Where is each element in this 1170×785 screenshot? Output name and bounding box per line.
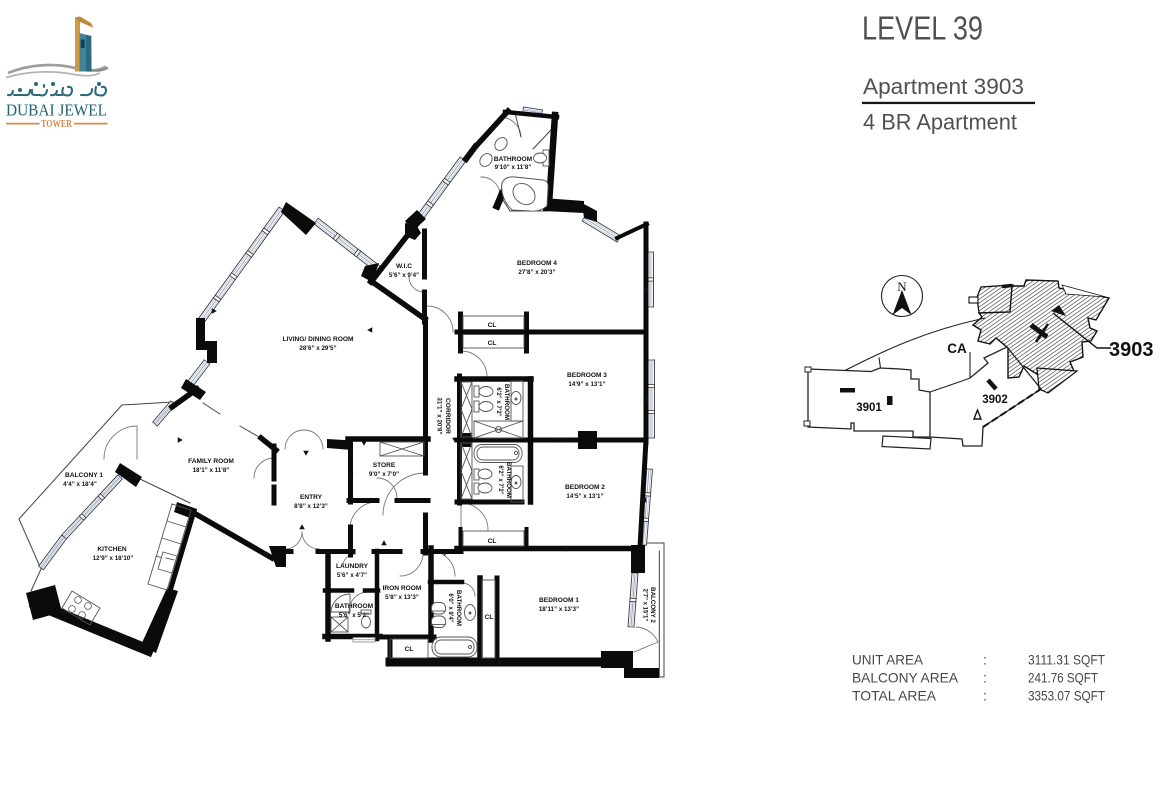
svg-text:4’4” x 18’4”: 4’4” x 18’4” bbox=[63, 481, 97, 488]
svg-text:BEDROOM 4: BEDROOM 4 bbox=[517, 260, 557, 267]
svg-text:3902: 3902 bbox=[982, 394, 1008, 406]
svg-text::: : bbox=[983, 653, 987, 668]
svg-text:9’0” x 7’0”: 9’0” x 7’0” bbox=[369, 471, 399, 478]
svg-text:BATHROOM: BATHROOM bbox=[455, 590, 462, 626]
svg-text:31’1” x 20’8”: 31’1” x 20’8” bbox=[436, 397, 443, 434]
svg-text:3903: 3903 bbox=[1109, 339, 1154, 361]
svg-text:IRON ROOM: IRON ROOM bbox=[383, 585, 422, 592]
svg-text:CL: CL bbox=[488, 322, 497, 329]
svg-text:9’10” x 11’8”: 9’10” x 11’8” bbox=[495, 164, 532, 171]
svg-text::: : bbox=[983, 671, 987, 686]
svg-text:BALCONY 1: BALCONY 1 bbox=[65, 472, 103, 479]
svg-text:3901: 3901 bbox=[856, 402, 882, 414]
svg-text:6’0” x 9’4”: 6’0” x 9’4” bbox=[447, 593, 453, 622]
svg-text:18’1” x 11’8”: 18’1” x 11’8” bbox=[193, 467, 230, 474]
svg-text:5’8” x 13’3”: 5’8” x 13’3” bbox=[385, 594, 419, 601]
svg-text:LIVING/ DINING ROOM: LIVING/ DINING ROOM bbox=[282, 336, 354, 343]
svg-text:5’6” x 5’2”: 5’6” x 5’2” bbox=[339, 612, 369, 619]
svg-text:TOWER: TOWER bbox=[41, 119, 72, 130]
svg-text:8’8” x 12’3”: 8’8” x 12’3” bbox=[294, 503, 328, 510]
svg-text:BATHROOM: BATHROOM bbox=[494, 156, 533, 163]
svg-text:BEDROOM 2: BEDROOM 2 bbox=[565, 484, 605, 491]
svg-text:TOTAL AREA: TOTAL AREA bbox=[852, 689, 937, 704]
svg-text:FAMILY ROOM: FAMILY ROOM bbox=[188, 458, 234, 465]
svg-text:14’5” x 13’1”: 14’5” x 13’1” bbox=[566, 493, 603, 500]
svg-text:UNIT AREA: UNIT AREA bbox=[852, 653, 924, 668]
svg-text:5’6” x 9’4”: 5’6” x 9’4” bbox=[389, 272, 419, 279]
svg-text:BATHROOM: BATHROOM bbox=[505, 462, 512, 498]
svg-text:BALCONY AREA: BALCONY AREA bbox=[852, 671, 959, 686]
svg-text:241.76 SQFT: 241.76 SQFT bbox=[1028, 671, 1098, 686]
svg-text:W.I.C: W.I.C bbox=[396, 263, 412, 270]
svg-text:18’11” x 13’3”: 18’11” x 13’3” bbox=[539, 606, 579, 613]
svg-text:Apartment 3903: Apartment 3903 bbox=[863, 74, 1024, 99]
svg-text:BATHROOM: BATHROOM bbox=[335, 603, 374, 610]
svg-text:KITCHEN: KITCHEN bbox=[97, 546, 127, 553]
svg-text:CA: CA bbox=[947, 341, 967, 356]
svg-text:3353.07 SQFT: 3353.07 SQFT bbox=[1028, 689, 1105, 704]
svg-text:12’9” x 18’10”: 12’9” x 18’10” bbox=[93, 555, 134, 562]
svg-text:14’9” x 13’1”: 14’9” x 13’1” bbox=[568, 381, 605, 388]
svg-text:BEDROOM 1: BEDROOM 1 bbox=[539, 597, 579, 604]
svg-text:6’2” x 7’2”: 6’2” x 7’2” bbox=[495, 387, 501, 416]
svg-text:28’6” x 29’5”: 28’6” x 29’5” bbox=[299, 345, 336, 352]
svg-text:6’2” x 7’2”: 6’2” x 7’2” bbox=[497, 465, 503, 494]
svg-text:2’7” x 15’1”: 2’7” x 15’1” bbox=[642, 589, 648, 622]
svg-text:27’8” x 20’3”: 27’8” x 20’3” bbox=[518, 269, 555, 276]
svg-text:LAUNDRY: LAUNDRY bbox=[336, 563, 369, 570]
svg-text:CL: CL bbox=[488, 538, 497, 545]
svg-text:CORRIDOR: CORRIDOR bbox=[444, 398, 451, 434]
svg-text:DUBAI JEWEL: DUBAI JEWEL bbox=[6, 101, 107, 120]
svg-text:BEDROOM 3: BEDROOM 3 bbox=[567, 372, 607, 379]
svg-text:ENTRY: ENTRY bbox=[300, 494, 323, 501]
svg-text:LEVEL 39: LEVEL 39 bbox=[862, 10, 983, 47]
svg-text:5’6” x 4’7”: 5’6” x 4’7” bbox=[337, 572, 367, 579]
svg-text:BALCONY 2: BALCONY 2 bbox=[649, 587, 656, 623]
svg-text:4 BR Apartment: 4 BR Apartment bbox=[863, 110, 1018, 135]
svg-text::: : bbox=[983, 689, 987, 704]
svg-text:CL: CL bbox=[405, 646, 414, 653]
svg-text:CL: CL bbox=[488, 340, 497, 347]
svg-text:CL: CL bbox=[485, 614, 494, 621]
svg-text:STORE: STORE bbox=[373, 462, 396, 469]
svg-text:BATHROOM: BATHROOM bbox=[503, 384, 510, 420]
svg-text:3111.31 SQFT: 3111.31 SQFT bbox=[1028, 653, 1105, 668]
